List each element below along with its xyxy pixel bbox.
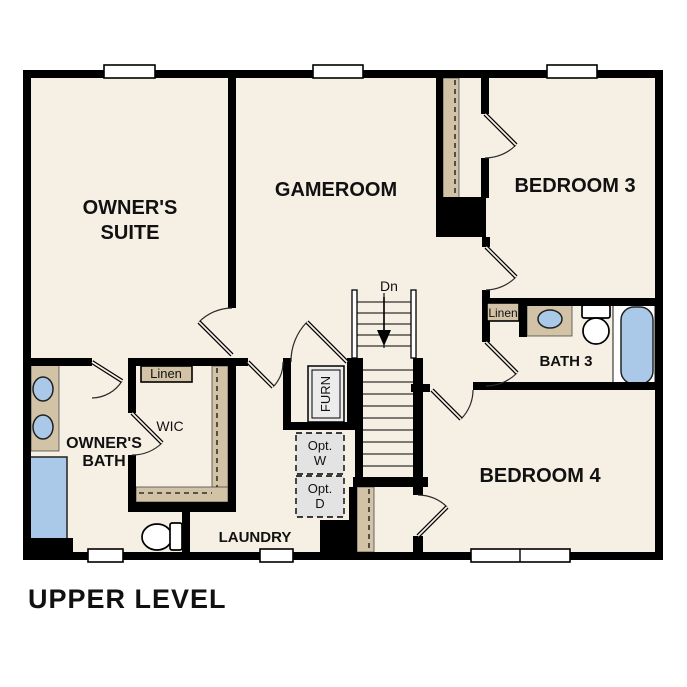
window-icon xyxy=(547,65,597,78)
floor-plan: OWNER'S SUITE GAMEROOM BEDROOM 3 BEDROOM… xyxy=(0,0,687,687)
sink-icon xyxy=(33,415,53,439)
opt-dryer-label-line1: Opt. xyxy=(308,481,333,496)
room-label-bedroom3: BEDROOM 3 xyxy=(514,175,635,197)
room-label-owners-bath-line1: OWNER'S xyxy=(66,435,142,452)
room-label-bedroom4: BEDROOM 4 xyxy=(479,465,601,487)
furnace-label: FURN xyxy=(318,376,333,412)
bathtub-icon xyxy=(621,307,653,384)
wic-shelf-bottom xyxy=(136,487,228,502)
shower-icon xyxy=(29,457,67,539)
toilet-tank-icon xyxy=(582,305,610,318)
room-label-owners-suite-line2: SUITE xyxy=(101,222,160,244)
room-label-owners-bath-line2: BATH xyxy=(82,453,125,470)
bath3-linen-label: Linen xyxy=(488,306,517,320)
chase-mass xyxy=(436,197,486,237)
opt-dryer-label-line2: D xyxy=(315,496,324,511)
toilet-tank-icon xyxy=(170,523,182,550)
room-label-wic: WIC xyxy=(156,418,183,434)
window-icon xyxy=(313,65,363,78)
toilet-icon xyxy=(142,524,172,550)
room-label-owners-suite-line1: OWNER'S xyxy=(83,197,178,219)
plan-title: UPPER LEVEL xyxy=(28,584,227,614)
opt-washer-label-line2: W xyxy=(314,453,327,468)
bedroom3-closet-shelf xyxy=(443,78,459,198)
room-label-gameroom: GAMEROOM xyxy=(275,179,397,201)
stair-rail xyxy=(352,290,357,358)
sink-icon xyxy=(33,377,53,401)
wic-shelf-right xyxy=(212,366,228,502)
window-icon xyxy=(104,65,155,78)
wall-mass xyxy=(320,520,357,552)
stairs-down-label: Dn xyxy=(380,278,398,294)
window-icon xyxy=(88,549,123,562)
window-icon xyxy=(260,549,293,562)
bedroom4-closet-shelf xyxy=(357,487,374,552)
room-label-laundry: LAUNDRY xyxy=(219,529,292,546)
opt-washer-label-line1: Opt. xyxy=(308,438,333,453)
room-label-bath3: BATH 3 xyxy=(539,353,592,370)
sink-icon xyxy=(538,310,562,328)
toilet-icon xyxy=(583,318,609,344)
wic-linen-label: Linen xyxy=(150,366,182,381)
stair-rail xyxy=(411,290,416,358)
